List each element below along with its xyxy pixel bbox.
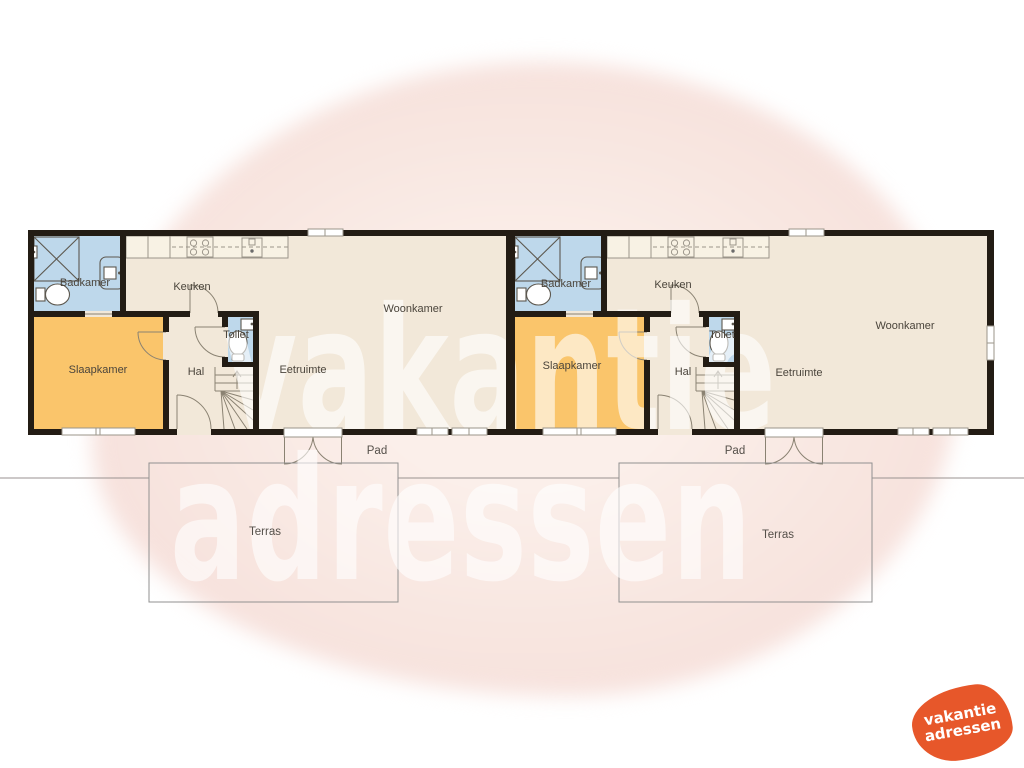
area-label-terras-right: Terras [762, 529, 794, 541]
room-label-hal-right: Hal [675, 366, 692, 378]
front-door-opening [177, 429, 211, 435]
room-label-toilet-left: Toilet [223, 329, 249, 341]
room-label-eetruimte-left: Eetruimte [279, 364, 326, 376]
room-label-slaapkamer-left: Slaapkamer [69, 364, 128, 376]
room-label-woonkamer-right: Woonkamer [875, 320, 934, 332]
room-label-badkamer-right: Badkamer [541, 278, 591, 290]
area-label-pad-right: Pad [725, 445, 745, 457]
party-wall [506, 230, 515, 435]
unit-walls [34, 229, 487, 437]
east-window [987, 326, 994, 360]
room-label-toilet-right: Toilet [709, 329, 735, 341]
area-label-pad-left: Pad [367, 445, 387, 457]
floorplan-walls-layer [0, 0, 1024, 768]
room-label-hal-left: Hal [188, 366, 205, 378]
outer-walls [28, 230, 994, 435]
vakantieadressen-logo-text: vakantie adressen [921, 701, 1002, 745]
room-label-badkamer-left: Badkamer [60, 277, 110, 289]
room-label-slaapkamer-right: Slaapkamer [543, 360, 602, 372]
floorplan-canvas: vakantie adressen [0, 0, 1024, 768]
room-label-keuken-right: Keuken [654, 279, 691, 291]
french-door-sill [284, 428, 342, 437]
room-label-woonkamer-left: Woonkamer [383, 303, 442, 315]
unit-walls-right [515, 229, 968, 437]
room-label-eetruimte-right: Eetruimte [775, 367, 822, 379]
bedroom-window [62, 428, 135, 435]
area-label-terras-left: Terras [249, 526, 281, 538]
room-label-keuken-left: Keuken [173, 281, 210, 293]
